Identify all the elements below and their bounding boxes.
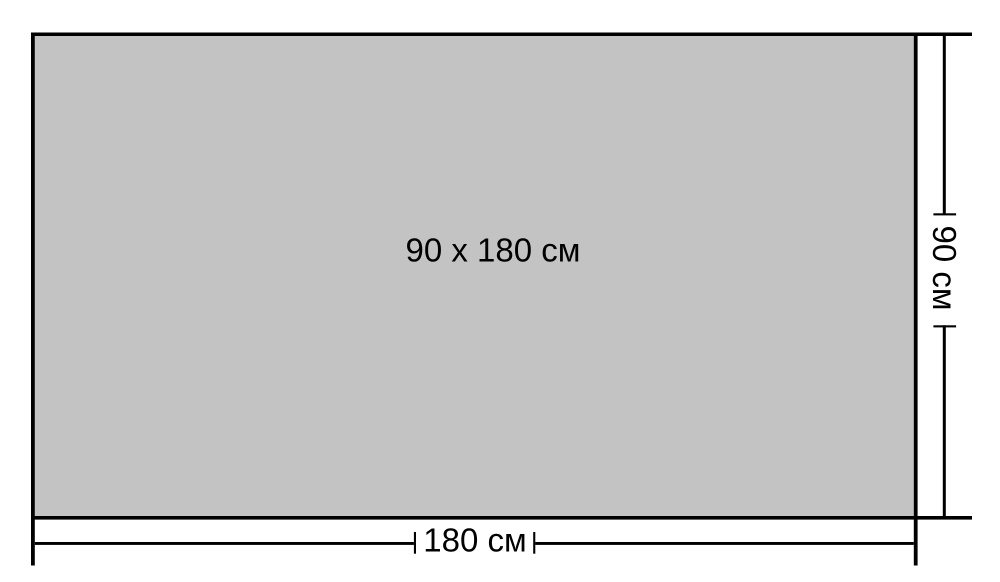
svg-text:180 см: 180 см <box>423 521 526 558</box>
svg-text:90 см: 90 см <box>926 225 963 310</box>
svg-text:90 x 180 см: 90 x 180 см <box>406 232 581 269</box>
